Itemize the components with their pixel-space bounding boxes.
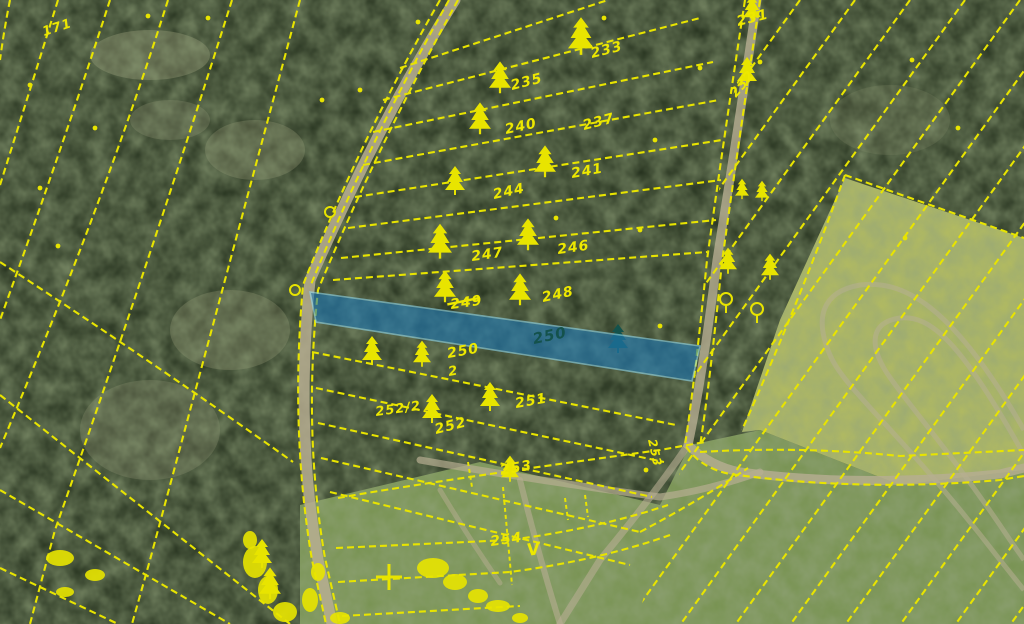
- map-symbol-blob: [273, 602, 297, 622]
- map-symbol-blob: [330, 612, 350, 624]
- cadastral-map-view[interactable]: 1712312332322352402372412442462472482492…: [0, 0, 1024, 624]
- map-symbol-blob: [443, 574, 467, 590]
- map-symbol-blob: [311, 563, 325, 581]
- map-symbol-blob: [56, 587, 74, 597]
- map-symbol-blob: [468, 589, 488, 603]
- map-symbol-blob: [46, 550, 74, 566]
- map-symbol-blob: [243, 531, 257, 549]
- map-symbol-blob: [85, 569, 105, 581]
- map-canvas[interactable]: 1712312332322352402372412442462472482492…: [0, 0, 1024, 624]
- map-symbol-blob: [417, 558, 449, 578]
- map-symbol-blob: [486, 600, 510, 612]
- map-symbol-blob: [512, 613, 528, 623]
- map-symbol-blob: [302, 588, 318, 612]
